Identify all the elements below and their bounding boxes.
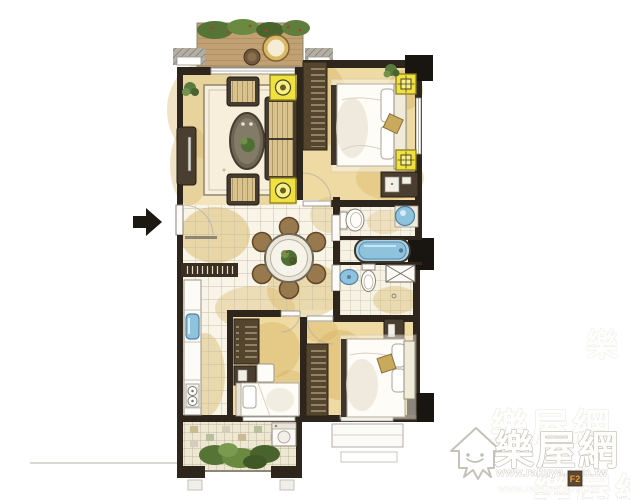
rear-balcony-plant-5: [243, 455, 267, 469]
armchair-bottom-cushion-stripes: [231, 178, 255, 201]
front-balcony-planter-4: [282, 20, 310, 36]
floor-plan-image: 樂屋網樂屋網樂www.rakuya.com.tw樂屋網www.rakuya.co…: [0, 0, 630, 500]
mosaic-cell-3: [222, 426, 230, 433]
lamp-bottom-center: [280, 188, 286, 194]
bathtub-drain: [399, 248, 403, 252]
planter-flower-6: [299, 29, 302, 32]
balcony-stool-top: [248, 53, 257, 62]
washing-machine-knob: [275, 425, 277, 427]
scene-layers: 樂屋網樂屋網樂www.rakuya.com.tw樂屋網www.rakuya.co…: [0, 0, 630, 500]
master-plant-2: [384, 71, 391, 78]
bath-b-floor-shade: [373, 286, 417, 314]
bedroom2-window-bottom: [243, 417, 295, 421]
bath-a-sink: [396, 207, 415, 226]
watermark-url-text: www.rakuya.com.tw: [495, 467, 608, 479]
stove-burner-1-center: [191, 390, 194, 393]
wall-rear-balcony-right: [296, 422, 302, 468]
master-dresser-knob: [391, 183, 393, 185]
mosaic-cell-1: [190, 426, 198, 433]
master-blanket-shade: [336, 98, 368, 158]
bath-a-sink-highlight: [400, 210, 406, 216]
lamp-top-center: [280, 85, 286, 91]
master-wardrobe-hangers: [305, 65, 325, 147]
bedroom2-pillow: [243, 386, 256, 408]
coffee-table-dot-1: [241, 122, 245, 126]
unit-label-text: F2: [570, 474, 581, 484]
balcony-round-chair-cushion: [268, 40, 285, 57]
bath-b-toilet-tank: [362, 264, 375, 270]
bath-b-door-leaf: [332, 265, 340, 291]
master-plant-3: [393, 70, 400, 77]
kitchen-sink: [186, 314, 199, 339]
coffee-table-dot-2: [249, 122, 253, 126]
tv-screen: [188, 137, 191, 171]
dining-centerpiece-flower-1: [286, 251, 288, 253]
bedroom2-wardrobe-hangers: [236, 322, 257, 361]
bedroom3-headboard: [404, 341, 415, 399]
mosaic-cell-5: [254, 426, 262, 433]
kitchen-shelf: [185, 236, 217, 239]
mosaic-cell-7: [190, 440, 198, 447]
wall-bath-west-2: [333, 241, 340, 265]
front-balcony-planter-2: [227, 19, 259, 35]
bedroom3-blanket-shade: [346, 359, 378, 411]
bedroom3-pillow-2: [392, 369, 405, 392]
wall-bath-west-3: [333, 291, 340, 315]
rear-balcony-corner-left: [177, 466, 205, 478]
master-door-leaf: [303, 201, 331, 206]
armchair-top-cushion-stripes: [231, 81, 255, 102]
coffee-table-plant-leaf: [241, 138, 248, 145]
wall-bedroom2-top: [227, 310, 281, 317]
faint-watermark-url: www.rakuya.com.tw: [497, 484, 600, 495]
mosaic-cell-4: [238, 434, 246, 441]
faint-watermark-glyph-right: 樂: [586, 327, 620, 363]
rug-speckle-3: [223, 169, 226, 172]
master-dresser-drawer-2: [402, 177, 411, 184]
bath-b-toilet-bowl: [362, 271, 376, 292]
living-plant-3: [191, 88, 199, 96]
pier-marker-left: [188, 480, 202, 490]
living-plant-2: [182, 88, 190, 96]
sofa-cushion-2-stripes: [269, 140, 293, 176]
mosaic-cell-2: [206, 434, 214, 441]
pier-marker-right: [280, 480, 294, 490]
planter-flower-4: [265, 30, 268, 33]
wall-top-left: [177, 67, 211, 75]
rear-balcony-plant-4: [218, 443, 238, 457]
bedroom2-door-leaf: [281, 311, 300, 316]
wall-rear-balcony-left: [177, 422, 183, 470]
kitchen-bar-items: [184, 266, 235, 274]
tv-cabinet: [177, 127, 196, 185]
hatch-block-left-box: [177, 57, 201, 65]
bedroom2-desk-drawer: [238, 370, 247, 381]
bath-b-sink-drain: [347, 275, 351, 279]
watermark-house-eye-right: [480, 453, 483, 456]
stove-burner-2-center: [191, 400, 194, 403]
sofa-cushion-1-stripes: [269, 102, 293, 138]
planter-flower-3: [249, 25, 252, 28]
wall-kitchen-bedroom2: [227, 317, 233, 422]
bath-a-door-leaf: [332, 215, 340, 241]
wall-bath-west-1: [333, 197, 340, 215]
watermark-house-eye-left: [466, 453, 469, 456]
wall-living-master: [297, 67, 303, 200]
planter-flower-2: [227, 31, 230, 34]
bedroom3-door-leaf: [307, 316, 333, 321]
washing-machine-door: [278, 431, 290, 443]
screenshot-root: 樂屋網樂屋網樂www.rakuya.com.tw樂屋網www.rakuya.co…: [0, 0, 630, 500]
bedroom2-headboard: [236, 383, 241, 416]
bedroom2-blanket-shade: [266, 388, 294, 412]
entry-door-leaf: [176, 205, 183, 235]
planter-flower-1: [211, 27, 214, 30]
front-balcony-planter-1: [197, 21, 233, 39]
bedroom3-wardrobe-hangers: [308, 347, 326, 413]
dining-centerpiece-flower-2: [291, 259, 293, 261]
dining-centerpiece-leaf-2: [289, 257, 297, 265]
bedroom2-chair: [257, 364, 274, 382]
planter-flower-5: [287, 26, 290, 29]
